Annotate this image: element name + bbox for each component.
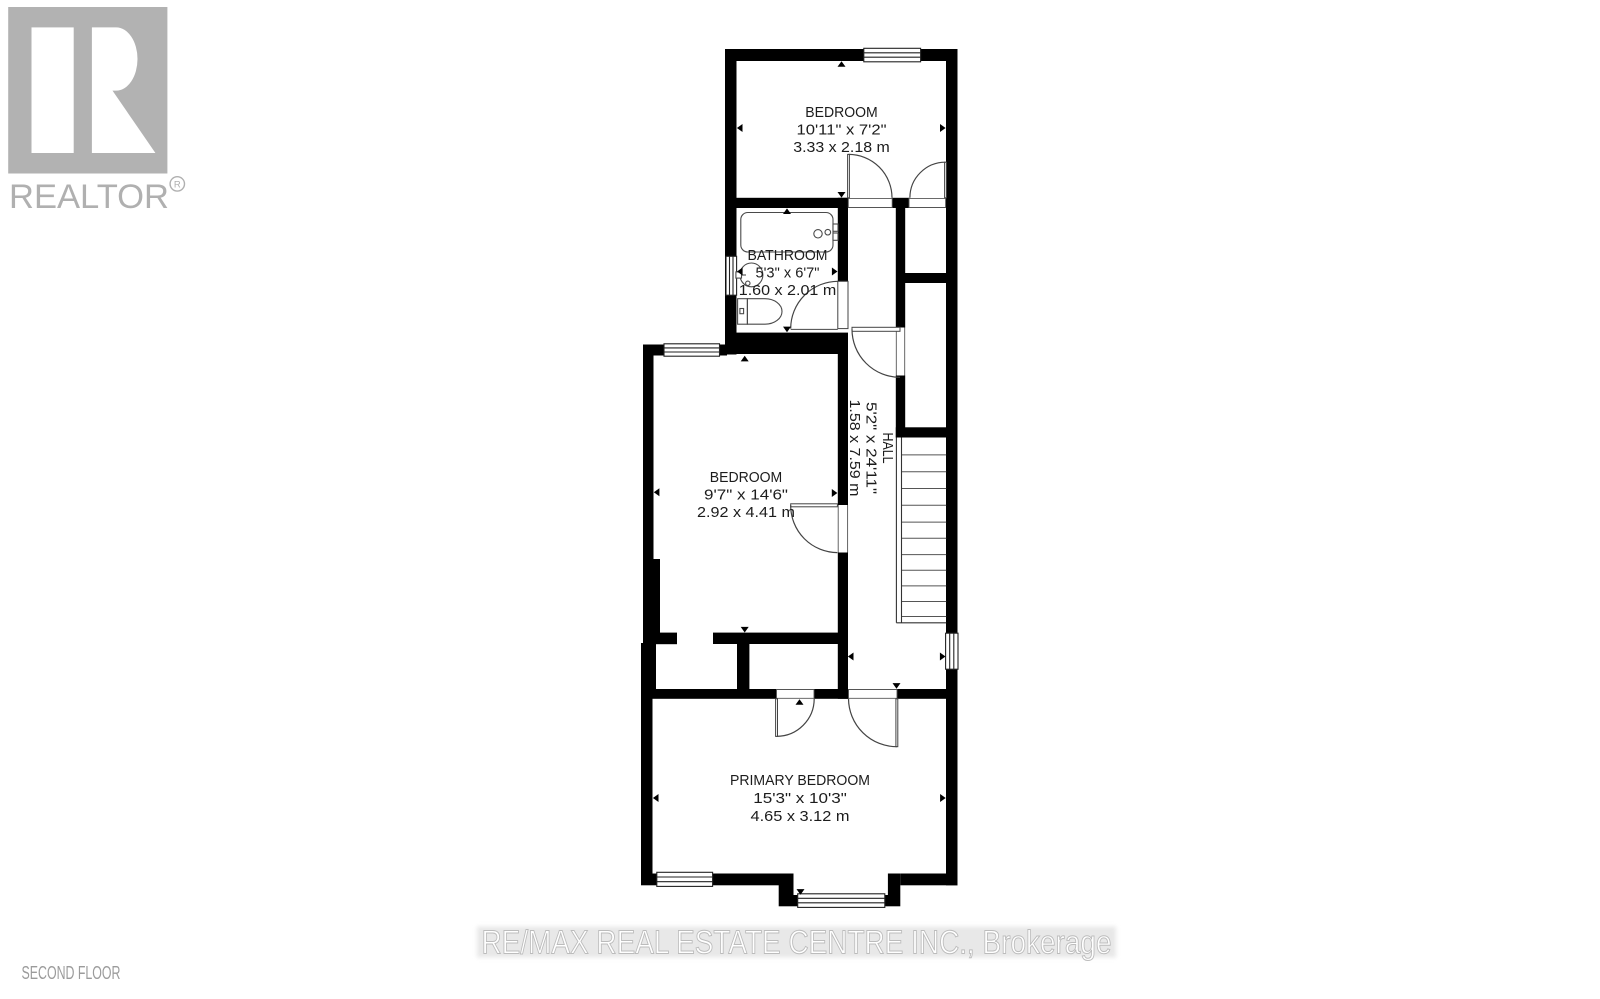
- svg-text:2.92 x 4.41 m: 2.92 x 4.41 m: [697, 504, 795, 521]
- svg-text:SECOND FLOOR: SECOND FLOOR: [22, 963, 121, 983]
- svg-text:BEDROOM: BEDROOM: [805, 104, 878, 121]
- svg-text:15'3" x 10'3": 15'3" x 10'3": [753, 790, 847, 807]
- svg-text:BEDROOM: BEDROOM: [710, 469, 783, 486]
- svg-text:9'7" x 14'6": 9'7" x 14'6": [704, 487, 788, 504]
- svg-text:10'11" x 7'2": 10'11" x 7'2": [797, 122, 887, 139]
- svg-text:REALTOR: REALTOR: [9, 178, 169, 216]
- svg-text:1.58 x 7.59 m: 1.58 x 7.59 m: [846, 400, 863, 497]
- svg-text:R: R: [174, 179, 181, 190]
- svg-text:5'2" x 24'11": 5'2" x 24'11": [863, 402, 880, 494]
- svg-text:3.33 x 2.18 m: 3.33 x 2.18 m: [793, 139, 890, 156]
- svg-text:HALL: HALL: [879, 433, 896, 464]
- svg-text:4.65 x 3.12 m: 4.65 x 3.12 m: [751, 808, 850, 825]
- svg-text:PRIMARY BEDROOM: PRIMARY BEDROOM: [730, 772, 870, 789]
- svg-text:RE/MAX REAL ESTATE CENTRE INC.: RE/MAX REAL ESTATE CENTRE INC., Brokerag…: [482, 924, 1112, 961]
- svg-text:5'3" x 6'7": 5'3" x 6'7": [756, 265, 820, 282]
- svg-text:1.60 x 2.01 m: 1.60 x 2.01 m: [739, 282, 837, 299]
- svg-text:BATHROOM: BATHROOM: [748, 247, 828, 264]
